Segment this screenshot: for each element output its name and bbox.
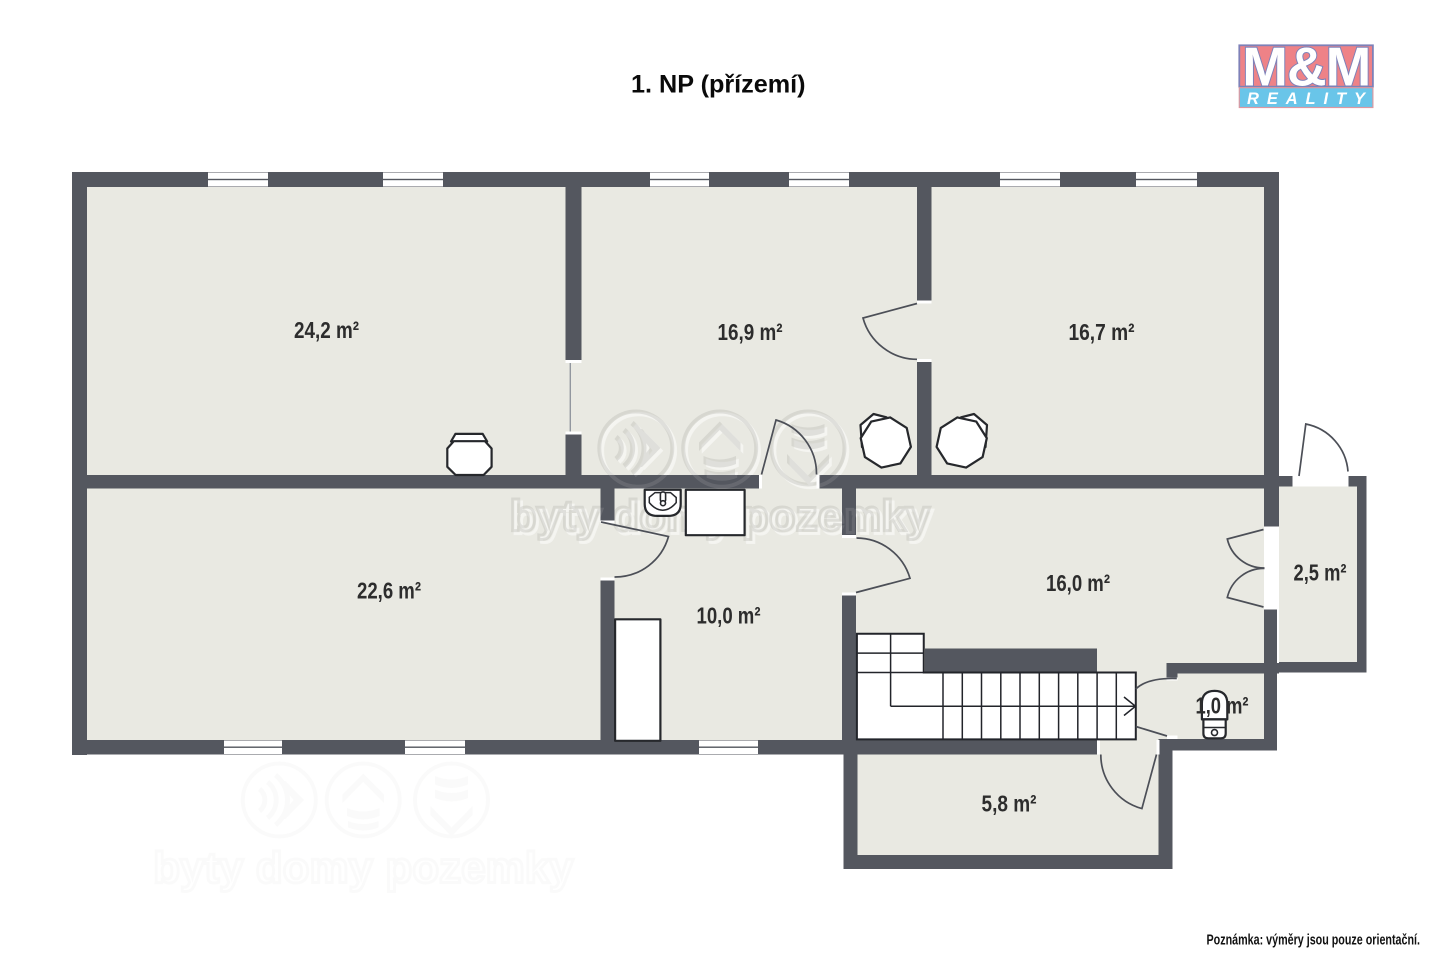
svg-text:22,6 m²: 22,6 m² — [357, 578, 421, 604]
svg-text:16,9 m²: 16,9 m² — [718, 319, 783, 345]
svg-text:2,5 m²: 2,5 m² — [1294, 560, 1347, 586]
svg-text:16,0 m²: 16,0 m² — [1046, 570, 1110, 596]
svg-text:Poznámka: výměry jsou pouze or: Poznámka: výměry jsou pouze orientační. — [1207, 933, 1421, 949]
svg-text:1. NP (přízemí): 1. NP (přízemí) — [631, 71, 806, 99]
svg-text:5,8 m²: 5,8 m² — [982, 791, 1037, 817]
svg-text:10,0 m²: 10,0 m² — [697, 603, 761, 629]
svg-text:16,7 m²: 16,7 m² — [1069, 319, 1135, 345]
svg-text:1,0 m²: 1,0 m² — [1196, 693, 1249, 719]
svg-text:24,2 m²: 24,2 m² — [294, 317, 359, 343]
